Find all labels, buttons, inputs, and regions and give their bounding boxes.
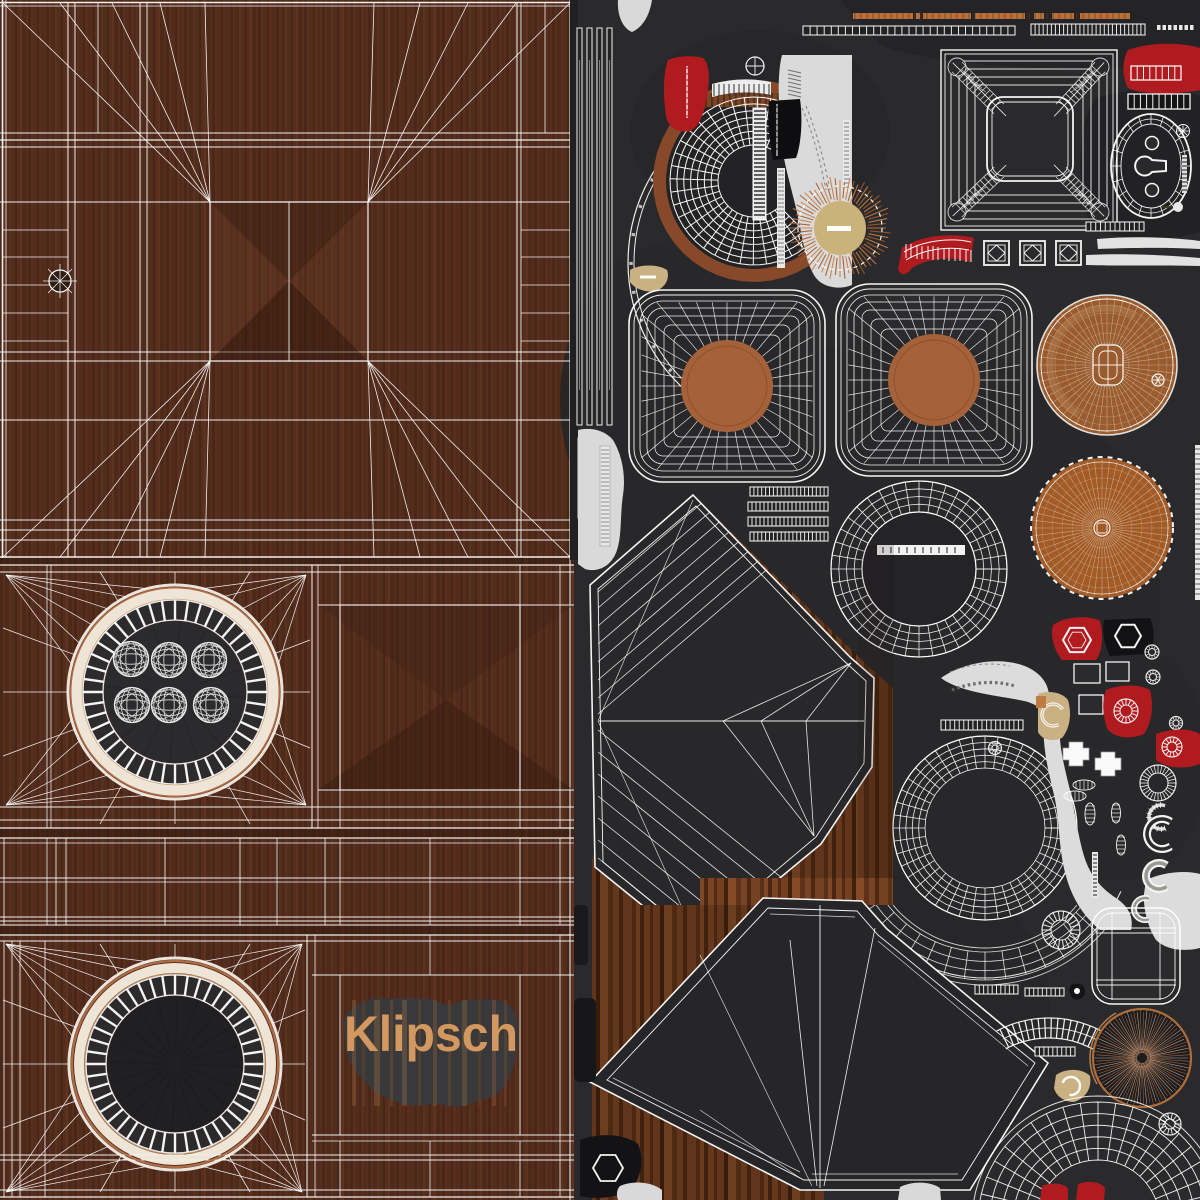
svg-text:Klipsch: Klipsch — [344, 1006, 518, 1062]
